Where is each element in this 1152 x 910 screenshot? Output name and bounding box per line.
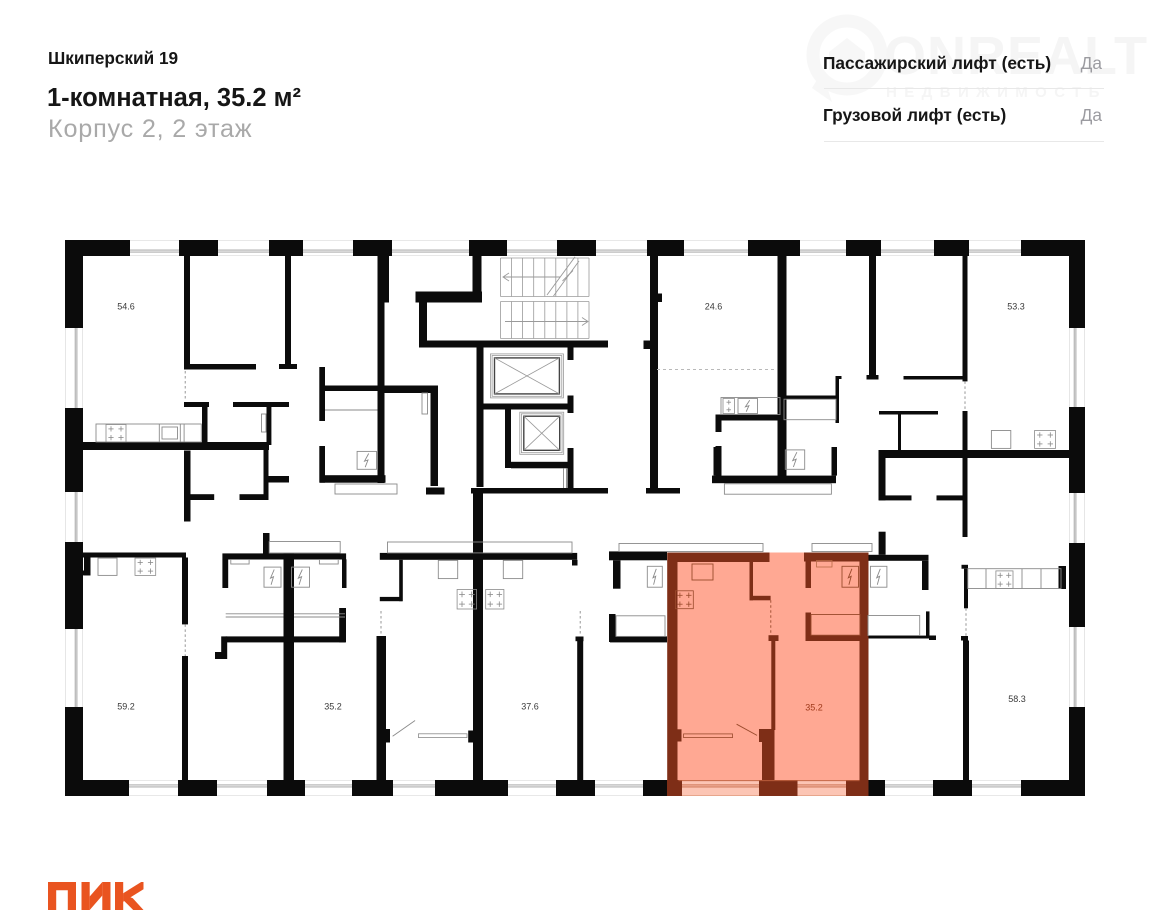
svg-text:Пассажирский лифт (есть): Пассажирский лифт (есть) bbox=[823, 53, 1051, 73]
svg-text:Да: Да bbox=[1081, 53, 1103, 73]
svg-text:Корпус 2, 2 этаж: Корпус 2, 2 этаж bbox=[48, 115, 252, 143]
svg-text:НЕДВИЖИМОСТЬ: НЕДВИЖИМОСТЬ bbox=[886, 84, 1107, 101]
svg-text:54.6: 54.6 bbox=[117, 302, 135, 312]
svg-text:Грузовой лифт (есть): Грузовой лифт (есть) bbox=[823, 105, 1006, 125]
svg-text:35.2: 35.2 bbox=[324, 702, 342, 712]
svg-text:Да: Да bbox=[1081, 105, 1103, 125]
svg-text:35.2: 35.2 bbox=[805, 703, 823, 713]
svg-text:59.2: 59.2 bbox=[117, 702, 135, 712]
svg-text:Шкиперский 19: Шкиперский 19 bbox=[48, 48, 178, 68]
svg-text:24.6: 24.6 bbox=[705, 302, 723, 312]
svg-text:37.6: 37.6 bbox=[521, 702, 539, 712]
svg-text:58.3: 58.3 bbox=[1008, 694, 1026, 704]
svg-text:53.3: 53.3 bbox=[1007, 302, 1025, 312]
svg-text:1-комнатная, 35.2 м²: 1-комнатная, 35.2 м² bbox=[47, 84, 301, 112]
